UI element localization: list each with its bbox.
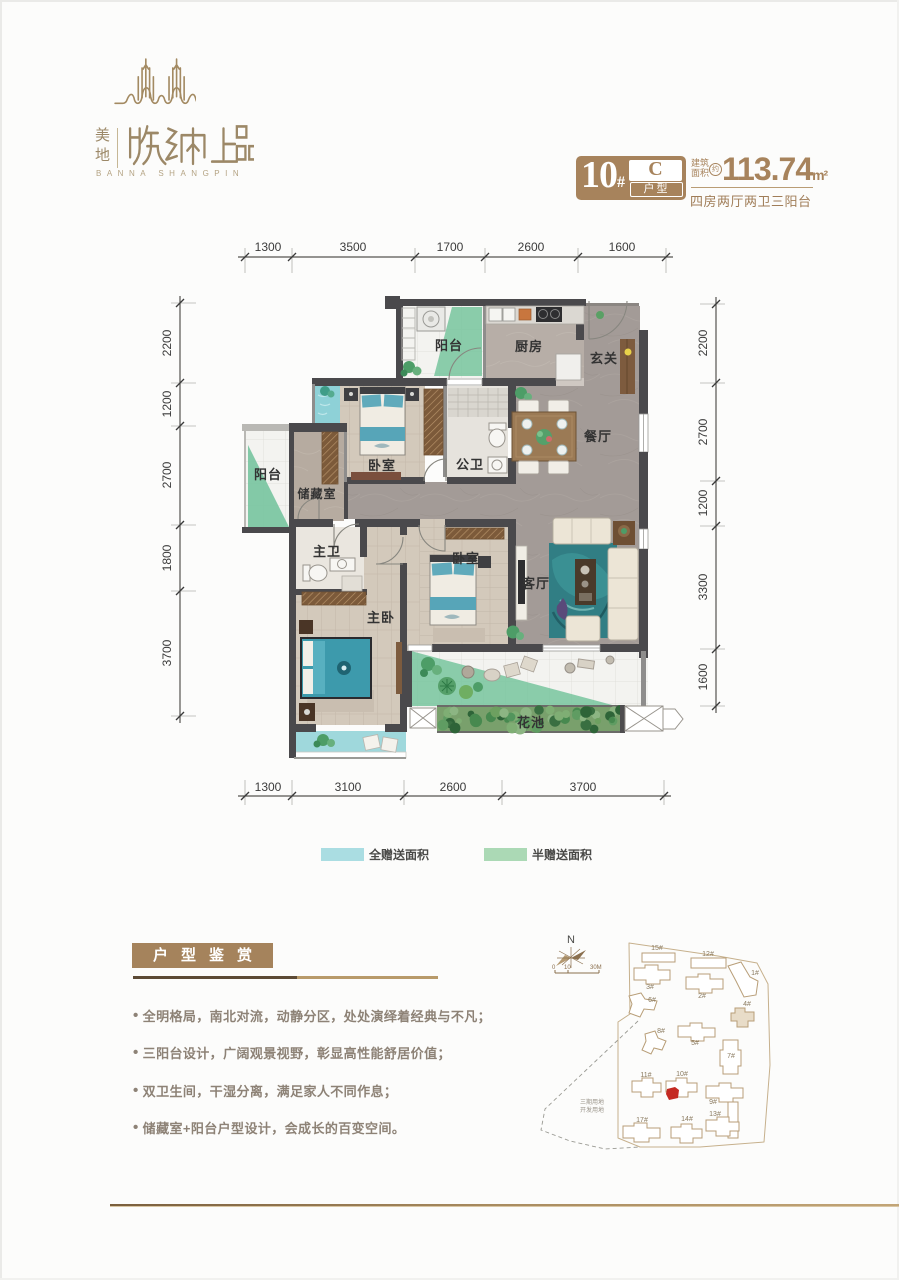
svg-text:3#: 3#: [646, 984, 654, 991]
svg-text:9#: 9#: [709, 1099, 717, 1106]
svg-text:公卫: 公卫: [456, 457, 484, 472]
svg-text:1800: 1800: [160, 544, 174, 571]
svg-text:1200: 1200: [696, 489, 710, 516]
svg-text:8#: 8#: [657, 1028, 665, 1035]
svg-text:12#: 12#: [702, 951, 714, 958]
svg-text:玄关: 玄关: [590, 351, 618, 366]
svg-text:厨房: 厨房: [515, 339, 543, 354]
svg-text:14#: 14#: [681, 1116, 693, 1123]
svg-text:阳台: 阳台: [254, 467, 282, 482]
svg-text:储藏室: 储藏室: [297, 486, 336, 501]
svg-text:2600: 2600: [518, 240, 545, 254]
svg-text:1300: 1300: [255, 780, 282, 794]
svg-text:开发用地: 开发用地: [580, 1106, 604, 1114]
svg-text:2700: 2700: [160, 461, 174, 488]
svg-text:1#: 1#: [751, 970, 759, 977]
svg-text:花池: 花池: [517, 715, 545, 730]
svg-text:3700: 3700: [160, 639, 174, 666]
svg-text:30M: 30M: [590, 965, 602, 971]
svg-text:2600: 2600: [440, 780, 467, 794]
svg-text:主卫: 主卫: [313, 544, 341, 559]
svg-text:餐厅: 餐厅: [583, 429, 612, 444]
svg-text:主卧: 主卧: [367, 610, 395, 625]
svg-text:3500: 3500: [340, 240, 367, 254]
svg-text:3100: 3100: [335, 780, 362, 794]
svg-text:10#: 10#: [676, 1071, 688, 1078]
svg-text:6#: 6#: [648, 997, 656, 1004]
svg-text:1300: 1300: [255, 240, 282, 254]
svg-text:阳台: 阳台: [435, 338, 463, 353]
svg-text:2700: 2700: [696, 418, 710, 445]
svg-text:卧室: 卧室: [368, 458, 396, 473]
svg-text:17#: 17#: [636, 1117, 648, 1124]
svg-text:1200: 1200: [160, 390, 174, 417]
svg-text:卧室: 卧室: [452, 551, 480, 566]
svg-text:13#: 13#: [709, 1111, 721, 1118]
svg-text:N: N: [567, 934, 575, 946]
svg-text:1600: 1600: [696, 663, 710, 690]
svg-text:2200: 2200: [696, 329, 710, 356]
svg-text:1600: 1600: [609, 240, 636, 254]
svg-text:全赠送面积: 全赠送面积: [368, 847, 429, 862]
svg-text:4#: 4#: [743, 1001, 751, 1008]
svg-text:三期用地: 三期用地: [580, 1098, 604, 1106]
svg-text:10: 10: [564, 965, 571, 971]
svg-text:15#: 15#: [651, 945, 663, 952]
svg-text:半赠送面积: 半赠送面积: [532, 847, 592, 862]
svg-text:3300: 3300: [696, 573, 710, 600]
svg-text:客厅: 客厅: [522, 576, 550, 591]
svg-text:5#: 5#: [691, 1040, 699, 1047]
svg-text:11#: 11#: [640, 1072, 651, 1079]
svg-text:2#: 2#: [698, 993, 706, 1000]
svg-text:7#: 7#: [727, 1053, 735, 1060]
svg-text:1700: 1700: [437, 240, 464, 254]
svg-text:2200: 2200: [160, 329, 174, 356]
svg-text:3700: 3700: [570, 780, 597, 794]
